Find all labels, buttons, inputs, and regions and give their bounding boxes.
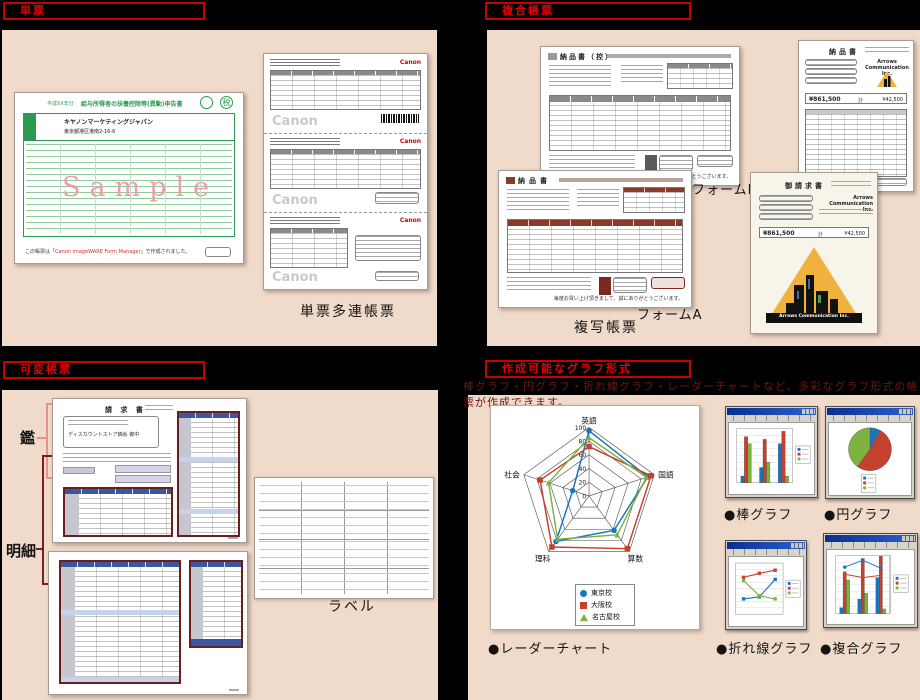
form-block: Canon Canon: [270, 138, 421, 208]
row-group-column: [179, 418, 191, 535]
label-form-a: フォームA: [637, 304, 703, 323]
brochure-page: 単票 複合帳票 可変帳票 作成可能なグラフ形式 棒グラフ・円グラフ・折れ線グラフ…: [0, 0, 920, 700]
radar-legend: 東京校 大阪校 名古屋校: [575, 584, 635, 626]
form-stamp-box: [205, 247, 231, 257]
form-footer: この帳票は「Canon imageWARE Form Manager」で作成され…: [25, 248, 191, 255]
doc-title: 請 求 書: [105, 405, 146, 415]
subtotal-band: [179, 509, 238, 514]
detail-table-left: [59, 560, 181, 684]
radar-chart: 英語国語算数理科社会020406080100: [493, 408, 689, 580]
chart-area: [728, 422, 815, 495]
window-buttons: [899, 409, 912, 414]
block-title-lines: [270, 138, 340, 147]
block-table: [270, 228, 348, 268]
block-title-lines: [270, 59, 340, 68]
table-rows: [203, 567, 241, 639]
kagami-label: 鑑: [20, 427, 35, 448]
tax-box: [697, 155, 733, 167]
canon-watermark: Canon: [272, 193, 318, 208]
doc-title: 御請求書: [785, 181, 825, 191]
info-lines: [577, 189, 619, 207]
svg-text:40: 40: [579, 467, 587, 473]
form-block: Canon Canon: [270, 59, 421, 129]
subtotal-band: [61, 677, 179, 682]
caption-labels: ラベル: [328, 596, 376, 616]
table-rows: [75, 567, 179, 682]
pie-chart: [829, 423, 911, 495]
addr-lines: [507, 189, 569, 213]
page-number-mark: [229, 689, 239, 691]
barcode: [381, 114, 419, 123]
total-band: [191, 639, 241, 646]
continuous-forms-sheet: Canon Canon Canon Canon Canon Canon: [263, 53, 428, 290]
total-box: [375, 192, 419, 204]
perforation: [264, 212, 427, 213]
form-block: Canon Canon: [270, 217, 421, 285]
window-titlebar: [727, 408, 816, 415]
section-header-tanpyo: 単票: [3, 2, 205, 20]
thanks-text: 毎度お買い上げ頂きまして、誠にありがとうございます。: [554, 295, 683, 302]
bar-chart-window: [725, 406, 818, 498]
items-table: [805, 109, 907, 177]
caption-line: ●折れ線グラフ: [716, 638, 812, 657]
table-header: [508, 220, 682, 226]
info-lines: [621, 65, 663, 83]
address-labels-grid: [259, 482, 429, 594]
canon-logo: Canon: [400, 59, 421, 66]
info-table: [667, 63, 733, 89]
legend-label: 名古屋校: [592, 612, 620, 622]
customer-box: [759, 195, 813, 202]
doc-number-lines: [831, 181, 871, 189]
window-titlebar: [827, 408, 913, 415]
footer-lines: [507, 277, 591, 291]
triangle-marker-icon: [580, 614, 588, 621]
amount-band: ¥861,500 計 ¥42,500: [759, 227, 869, 238]
window-titlebar: [727, 542, 805, 549]
arrows-logo-icon: [877, 71, 897, 87]
company-addr-lines: [819, 209, 873, 217]
canon-watermark: Canon: [272, 270, 318, 285]
caption-radar: ●レーダーチャート: [488, 638, 612, 657]
window-buttons: [791, 543, 804, 548]
svg-text:20: 20: [579, 481, 587, 487]
form-divider: [24, 140, 234, 141]
block-title-lines: [270, 217, 340, 226]
address-box: [805, 68, 857, 75]
doc-number-lines: [865, 47, 909, 55]
address-to: ディスカウントストア錦糸 御中: [68, 431, 139, 438]
footer-pre: この帳票は「: [25, 249, 55, 255]
detail-table-right: [177, 411, 240, 537]
legend-row: 東京校: [580, 587, 630, 599]
total-box: [873, 178, 907, 186]
amount-main: ¥861,500: [809, 96, 841, 103]
legend-label: 東京校: [591, 588, 612, 598]
bar-chart: [729, 423, 814, 494]
svg-text:社会: 社会: [504, 470, 520, 480]
note-box: [805, 77, 857, 84]
delivery-form-a-doc: 納品書 毎度お買い上げ頂きまして、誠にありがとうございます。: [498, 170, 692, 308]
arrows-invoice-doc: 御請求書 Arrows Communication Inc. ¥861,500 …: [750, 172, 878, 334]
meisai-bracket-connector: [36, 548, 42, 550]
legend-row: 大阪校: [580, 599, 630, 611]
logo-banner-text: Arrows Communication Inc.: [766, 314, 862, 319]
total-box: [375, 271, 419, 281]
address-box: ディスカウントストア錦糸 御中: [63, 416, 159, 448]
detail-table-right: [189, 560, 243, 648]
amount-chip: [63, 467, 95, 474]
amount-unit: 計: [818, 231, 823, 238]
arrows-delivery-doc: 納品書 Arrows Communication Inc. ¥861,500 計…: [798, 40, 914, 192]
table-rows: [79, 494, 171, 535]
window-titlebar: [825, 535, 916, 542]
circle-mark: [200, 96, 213, 109]
main-table: [549, 95, 731, 151]
table-header: [806, 110, 906, 114]
amount-tax: ¥42,500: [882, 97, 903, 103]
meisai-bracket-vertical: [42, 455, 44, 585]
canon-logo: Canon: [400, 138, 421, 145]
body-lines: [63, 453, 171, 465]
svg-text:理科: 理科: [535, 553, 551, 563]
section-header-graphs: 作成可能なグラフ形式: [485, 360, 691, 378]
svg-text:算数: 算数: [628, 553, 644, 563]
remarks-box: [355, 235, 421, 261]
legend-row: 名古屋校: [580, 611, 630, 623]
total-label-cells: [599, 277, 611, 295]
title-chip: [548, 53, 557, 60]
title-bar: [559, 178, 683, 182]
caption-combo: ●複合グラフ: [820, 638, 902, 657]
variable-doc-page1: 請 求 書 ディスカウントストア錦糸 御中: [52, 398, 247, 543]
amount-main: ¥861,500: [763, 230, 795, 237]
section-header-fukugo: 複合帳票: [485, 2, 691, 20]
table-header: [550, 96, 730, 102]
combo-chart-window: [823, 533, 918, 628]
form-title: 給与所得者の扶養控除等(異動)申告書: [81, 99, 183, 108]
chart-area: [828, 422, 912, 496]
amount-unit: 計: [858, 97, 863, 104]
form-company: キヤノンマーケティングジャパン: [64, 117, 153, 126]
caption-bar: ●棒グラフ: [724, 504, 792, 523]
pie-chart-window: [825, 406, 915, 499]
chart-area: [826, 549, 915, 625]
form-frame: キヤノンマーケティングジャパン 東京都港区港南2-16-6 Sample: [23, 113, 235, 237]
footer-lines: [549, 155, 635, 169]
radar-chart-panel: 英語国語算数理科社会020406080100 東京校 大阪校 名古屋校: [490, 405, 700, 630]
combo-chart: [827, 550, 914, 624]
block-table: [270, 149, 421, 189]
legend-label: 大阪校: [591, 600, 612, 610]
window-toolbar: [727, 415, 816, 421]
green-tax-form: 平成XX年分 給与所得者の扶養控除等(異動)申告書 税 キヤノンマーケティングジ…: [14, 92, 244, 264]
caption-pie: ●円グラフ: [824, 504, 892, 523]
sample-watermark: Sample: [62, 172, 218, 203]
footer-post: 」で作成されました。: [141, 249, 191, 255]
total-amount-box: [613, 277, 647, 293]
label-form-b: フォームB: [692, 179, 758, 198]
doc-title: 納品書: [518, 176, 551, 186]
address-box: [759, 204, 813, 211]
canon-watermark: Canon: [272, 114, 318, 129]
window-buttons: [802, 409, 815, 414]
canon-logo: Canon: [400, 217, 421, 224]
form-corner-cell: [24, 114, 36, 140]
window-buttons: [902, 536, 915, 541]
svg-text:0: 0: [582, 494, 586, 500]
detail-table-left: [63, 487, 173, 537]
address-lines: [68, 420, 128, 428]
delivery-copy-doc: 納品書（控） 毎度お買い上げ頂きまして、誠にありがとうございます。: [540, 46, 740, 186]
addr-lines: [549, 65, 611, 89]
subtotal-band: [61, 610, 179, 615]
table-header: [624, 188, 684, 192]
block-table: [270, 70, 421, 110]
subtotal-band: [179, 457, 238, 462]
date-lines: [145, 405, 173, 412]
amount-box-2: [115, 475, 171, 483]
doc-title: 納品書: [829, 47, 859, 57]
caption-tanpyo: 単票多連帳票: [300, 301, 396, 321]
main-table: [507, 219, 683, 273]
total-amount-box: [659, 155, 693, 171]
info-table: [623, 187, 685, 213]
form-era: 平成XX年分: [47, 100, 74, 107]
page-number-mark: [228, 537, 238, 539]
tax-stamp: 税: [220, 96, 233, 109]
footer-product: Canon imageWARE Form Manager: [55, 249, 141, 255]
kagami-bracket-connector: [37, 437, 46, 439]
amount-band: ¥861,500 計 ¥42,500: [805, 93, 907, 104]
amount-tax: ¥42,500: [844, 231, 865, 237]
table-rows: [191, 418, 238, 535]
caption-fukugo: 複写帳票: [574, 317, 638, 337]
svg-text:100: 100: [575, 426, 586, 432]
row-group-column: [61, 567, 75, 682]
table-header: [668, 64, 732, 68]
total-label-cells: [645, 155, 657, 171]
chart-area: [728, 556, 804, 627]
window-toolbar: [827, 415, 913, 421]
table-header: [271, 71, 420, 75]
line-chart-window: [725, 540, 807, 630]
section-header-kahen: 可変帳票: [3, 361, 205, 379]
table-header: [271, 229, 347, 233]
labels-sheet: [254, 477, 434, 599]
row-group-column: [65, 494, 79, 535]
svg-text:国語: 国語: [658, 470, 674, 480]
form-address: 東京都港区港南2-16-6: [64, 128, 115, 135]
tax-box: [651, 277, 685, 289]
window-toolbar: [825, 542, 916, 548]
meisai-label: 明細: [6, 540, 36, 561]
square-marker-icon: [580, 602, 587, 609]
line-chart: [729, 557, 803, 626]
amount-box-1: [115, 465, 171, 473]
perforation: [264, 133, 427, 134]
note-box: [759, 213, 813, 220]
row-group-column: [191, 567, 203, 639]
circle-marker-icon: [580, 590, 587, 597]
kagami-bracket-vertical: [46, 403, 48, 479]
window-toolbar: [727, 549, 805, 555]
customer-box: [805, 59, 857, 66]
svg-text:英語: 英語: [581, 415, 597, 425]
table-header: [271, 150, 420, 154]
doc-title: 納品書（控）: [560, 52, 614, 62]
variable-doc-page2: [48, 551, 248, 695]
title-bar: [607, 54, 731, 58]
title-chip: [506, 177, 515, 184]
